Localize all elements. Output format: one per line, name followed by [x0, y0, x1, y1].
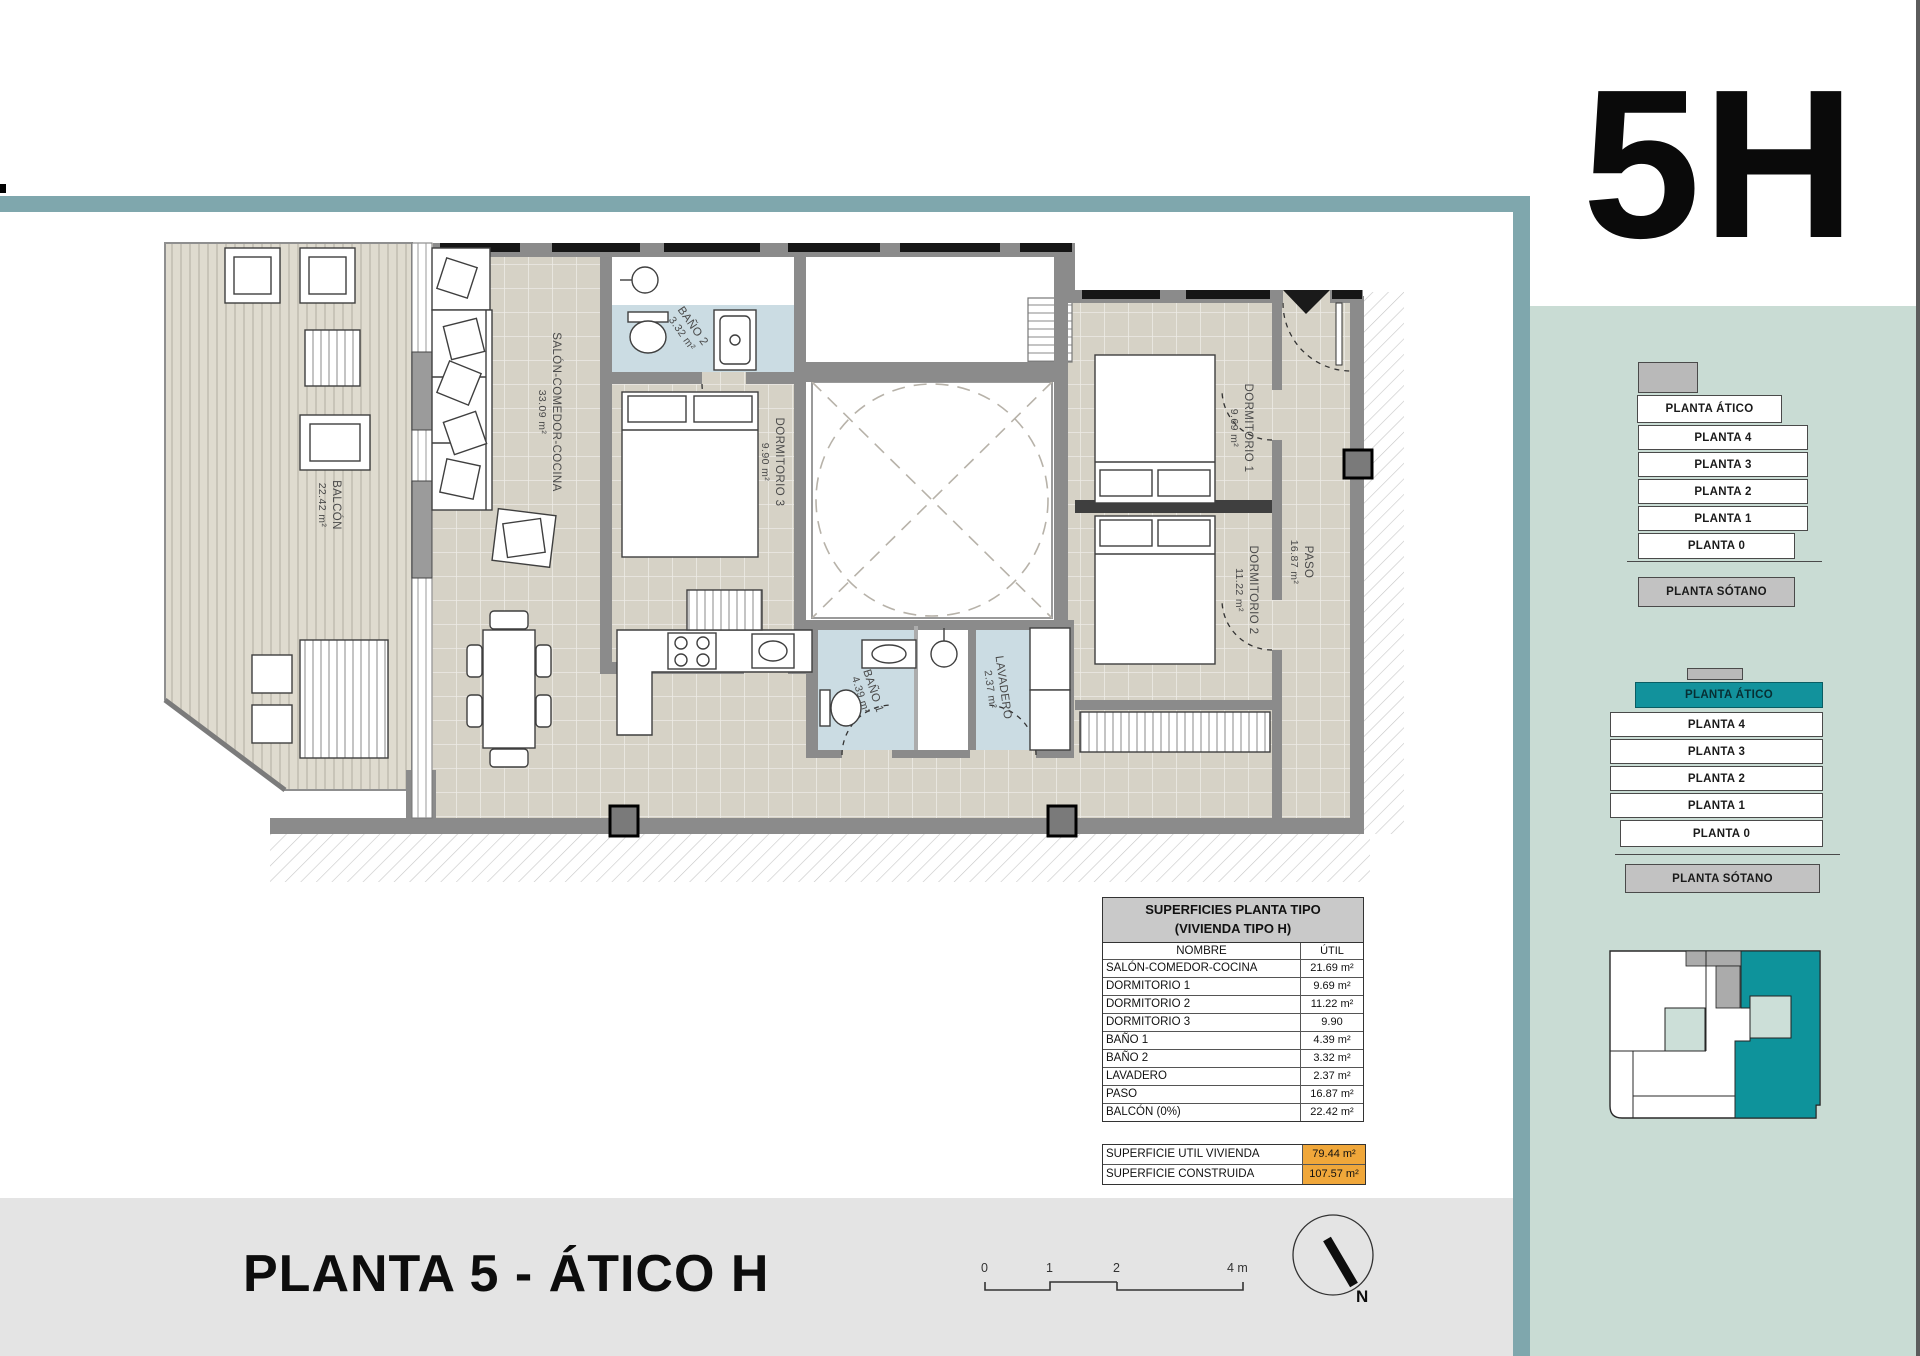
floor-option-2[interactable]: PLANTA 2: [1638, 479, 1808, 504]
svg-text:SALÓN-COMEDOR-COCINA: SALÓN-COMEDOR-COCINA: [550, 332, 563, 491]
building-stack-active: PLANTA ÁTICO PLANTA 4 PLANTA 3 PLANTA 2 …: [1610, 668, 1845, 898]
floor-option-4[interactable]: PLANTA 4: [1638, 425, 1808, 450]
scale-label-2: 2: [1113, 1261, 1120, 1275]
north-compass: N: [1290, 1212, 1385, 1312]
scale-label-0: 0: [981, 1261, 988, 1275]
floor-option-atico[interactable]: PLANTA ÁTICO: [1637, 395, 1782, 423]
table-row: BAÑO 23.32 m²: [1103, 1049, 1363, 1067]
svg-text:BALCÓN: BALCÓN: [330, 480, 343, 530]
area-table-title: SUPERFICIES PLANTA TIPO (VIVIENDA TIPO H…: [1102, 897, 1364, 943]
total-value-highlight: 79.44 m²: [1303, 1145, 1365, 1164]
total-value-highlight: 107.57 m²: [1303, 1165, 1365, 1184]
table-row: LAVADERO2.37 m²: [1103, 1067, 1363, 1085]
page-title: PLANTA 5 - ÁTICO H: [243, 1244, 769, 1304]
table-row: DORMITORIO 211.22 m²: [1103, 995, 1363, 1013]
svg-text:DORMITORIO 1: DORMITORIO 1: [1242, 384, 1254, 473]
table-row: PASO16.87 m²: [1103, 1085, 1363, 1103]
area-table: SUPERFICIES PLANTA TIPO (VIVIENDA TIPO H…: [1102, 897, 1364, 1122]
roof-block: [1638, 362, 1698, 393]
floor-option-sotano[interactable]: PLANTA SÓTANO: [1638, 577, 1795, 607]
floor-option-3[interactable]: PLANTA 3: [1638, 452, 1808, 477]
area-table-header: NOMBRE ÚTIL: [1103, 943, 1363, 959]
scale-label-1: 1: [1046, 1261, 1053, 1275]
corner-tick: [0, 184, 6, 193]
floor-option-1[interactable]: PLANTA 1: [1610, 793, 1823, 818]
svg-text:22.42 m²: 22.42 m²: [316, 483, 328, 528]
scale-bar: 0 1 2 4 m: [965, 1240, 1285, 1310]
unit-code: 5H: [1530, 58, 1910, 270]
sidebar: 5H PLANTA ÁTICO PLANTA 4 PLANTA 3 PLANTA…: [1530, 0, 1916, 1356]
building-stack-outline: PLANTA ÁTICO PLANTA 4 PLANTA 3 PLANTA 2 …: [1637, 362, 1857, 612]
svg-text:DORMITORIO 3: DORMITORIO 3: [773, 418, 785, 507]
accent-band-horizontal: [0, 196, 1530, 212]
svg-text:9.90 m²: 9.90 m²: [759, 443, 771, 481]
table-row: DORMITORIO 39.90: [1103, 1013, 1363, 1031]
svg-text:PASO: PASO: [1302, 546, 1314, 579]
table-row: DORMITORIO 19.69 m²: [1103, 977, 1363, 995]
glazing-wall: [412, 243, 432, 818]
key-plan: [1598, 948, 1830, 1128]
svg-text:9.69 m²: 9.69 m²: [1228, 409, 1240, 447]
floor-option-atico-active[interactable]: PLANTA ÁTICO: [1635, 682, 1823, 708]
floor-option-1[interactable]: PLANTA 1: [1638, 506, 1808, 531]
ground-line: [1627, 561, 1822, 562]
svg-text:DORMITORIO 2: DORMITORIO 2: [1247, 546, 1259, 635]
floor-option-4[interactable]: PLANTA 4: [1610, 712, 1823, 737]
total-row: SUPERFICIE CONSTRUIDA 107.57 m²: [1103, 1164, 1365, 1184]
floor-option-0[interactable]: PLANTA 0: [1620, 820, 1823, 847]
svg-text:33.09 m²: 33.09 m²: [536, 390, 548, 435]
accent-band-vertical: [1513, 196, 1530, 1356]
floor-option-0[interactable]: PLANTA 0: [1638, 533, 1795, 559]
table-row: BAÑO 14.39 m²: [1103, 1031, 1363, 1049]
north-label: N: [1356, 1287, 1368, 1306]
floor-option-sotano[interactable]: PLANTA SÓTANO: [1625, 864, 1820, 893]
floor-option-2[interactable]: PLANTA 2: [1610, 766, 1823, 791]
table-row: SALÓN-COMEDOR-COCINA21.69 m²: [1103, 959, 1363, 977]
area-table-totals: SUPERFICIE UTIL VIVIENDA 79.44 m² SUPERF…: [1102, 1144, 1366, 1185]
table-row: BALCÓN (0%)22.42 m²: [1103, 1103, 1363, 1121]
scale-label-4m: 4 m: [1227, 1261, 1248, 1275]
svg-text:11.22 m²: 11.22 m²: [1233, 568, 1245, 612]
ground-line: [1615, 854, 1840, 855]
floor-option-3[interactable]: PLANTA 3: [1610, 739, 1823, 764]
roof-block: [1687, 668, 1743, 680]
svg-text:16.87 m²: 16.87 m²: [1288, 540, 1300, 585]
page-edge: [1916, 0, 1920, 1356]
total-row: SUPERFICIE UTIL VIVIENDA 79.44 m²: [1103, 1145, 1365, 1164]
